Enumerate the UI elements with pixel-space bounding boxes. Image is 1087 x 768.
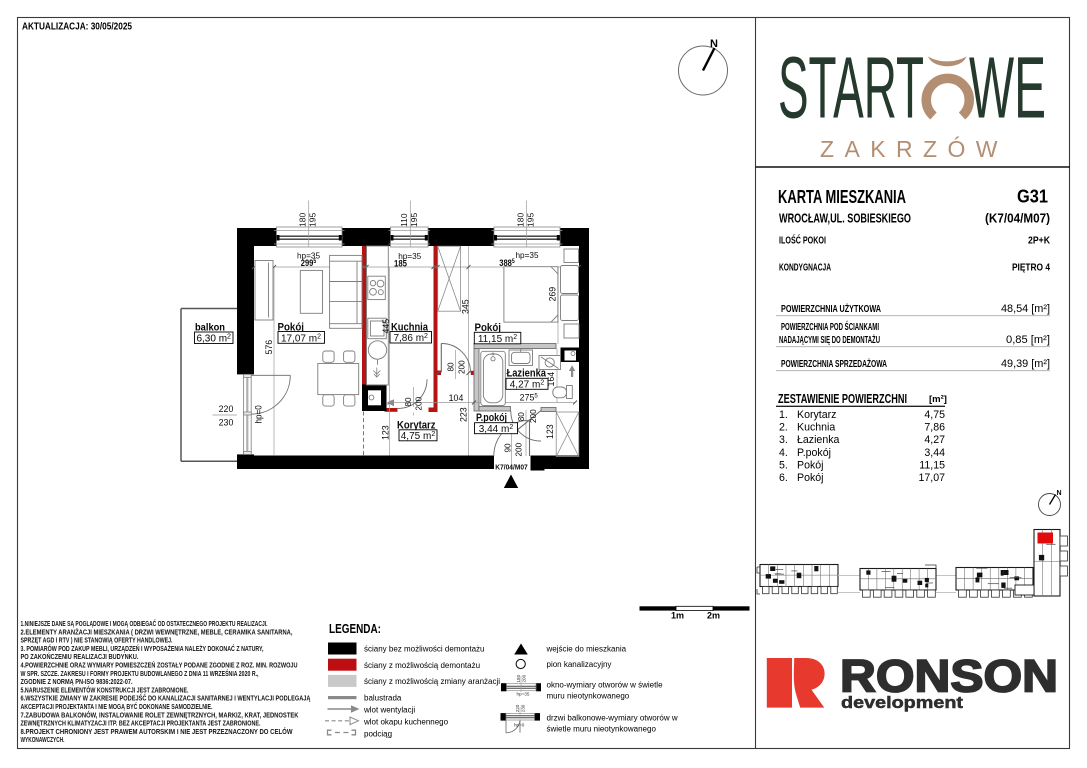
svg-text:4,75 m2: 4,75 m2 [401, 431, 436, 442]
svg-text:ZAKRZÓW: ZAKRZÓW [820, 136, 1004, 162]
svg-text:drzwi balkonowe-wymiary otworó: drzwi balkonowe-wymiary otworów w [547, 714, 678, 723]
svg-text:7.ZABUDOWA BALKONÓW, INSTALO: 7.ZABUDOWA BALKONÓW, INSTALOWANIE ROLET … [21, 710, 300, 719]
svg-text:hp=0: hp=0 [514, 723, 525, 728]
svg-text:ZGODNIE Z NORMĄ PN-ISO 9836:20: ZGODNIE Z NORMĄ PN-ISO 9836:2022-07. [21, 678, 133, 686]
svg-text:200: 200 [529, 409, 538, 423]
svg-text:8.PROJEKT CHRONIONY JEST PR: 8.PROJEKT CHRONIONY JEST PRAWEM AUTORSKI… [21, 727, 293, 736]
svg-text:START: START [778, 40, 924, 137]
svg-text:wejście do mieszkania: wejście do mieszkania [546, 645, 627, 654]
svg-text:G31: G31 [1017, 186, 1048, 207]
svg-text:7,86 m2: 7,86 m2 [393, 333, 428, 344]
svg-text:269: 269 [547, 287, 557, 302]
svg-text:3. POMIARÓW POD ZAKUP MEBLI, U: 3. POMIARÓW POD ZAKUP MEBLI, URZĄDZEŃ I … [21, 644, 264, 653]
svg-text:P.pokój: P.pokój [476, 412, 507, 424]
svg-text:K7/04/M07: K7/04/M07 [495, 463, 528, 472]
svg-text:200: 200 [515, 442, 524, 456]
svg-text:KONDYGNACJA: KONDYGNACJA [779, 263, 831, 274]
svg-text:104: 104 [449, 393, 464, 403]
svg-text:4.: 4. [779, 447, 788, 459]
svg-text:123: 123 [545, 424, 555, 439]
svg-text:N: N [710, 38, 718, 50]
svg-text:PIĘTRO 4: PIĘTRO 4 [1012, 263, 1050, 274]
svg-text:świetle muru nieotynkowanego: świetle muru nieotynkowanego [547, 725, 657, 734]
svg-text:48,54 [m²]: 48,54 [m²] [1001, 303, 1050, 315]
svg-text:230: 230 [219, 417, 234, 427]
svg-text:4,27: 4,27 [924, 434, 945, 446]
svg-text:N: N [1057, 490, 1062, 497]
svg-text:POWIERZCHNIA UŻYTKOWA: POWIERZCHNIA UŻYTKOWA [781, 302, 881, 315]
svg-text:hp=35: hp=35 [517, 691, 530, 696]
svg-text:wlot wentylacji: wlot wentylacji [363, 705, 415, 714]
svg-text:muru nieotynkowanego: muru nieotynkowanego [547, 692, 630, 701]
svg-text:80: 80 [446, 362, 455, 372]
svg-text:5.NARUSZENIE ELEMENTÓW KONSTRU: 5.NARUSZENIE ELEMENTÓW KONSTRUKCJI JEST … [21, 685, 189, 694]
svg-text:balustrada: balustrada [364, 694, 402, 703]
svg-text:123: 123 [380, 425, 390, 440]
svg-text:AKTUALIZACJA: 30/05/2025: AKTUALIZACJA: 30/05/2025 [22, 21, 132, 33]
svg-text:6,30 m2: 6,30 m2 [196, 334, 231, 345]
svg-text:SPRZĘT AGD I RTV ) NIE STANOWI: SPRZĘT AGD I RTV ) NIE STANOWIĄ OFERTY H… [21, 637, 173, 645]
svg-text:pion kanalizacyjny: pion kanalizacyjny [547, 660, 612, 669]
svg-text:POWIERZCHNIA SPRZEDAŻOWA: POWIERZCHNIA SPRZEDAŻOWA [781, 357, 887, 370]
svg-text:200: 200 [457, 360, 466, 374]
svg-text:Łazienka: Łazienka [507, 367, 547, 379]
svg-text:ściany z możliwością demontażu: ściany z możliwością demontażu [364, 661, 480, 670]
svg-text:Pokój: Pokój [797, 459, 824, 471]
svg-text:6.WSZYSTKIE ZMIANY W ZAKRESIE: 6.WSZYSTKIE ZMIANY W ZAKRESIE PODEJŚĆ DO… [21, 694, 311, 703]
svg-text:110: 110 [399, 213, 409, 227]
svg-text:180: 180 [516, 674, 521, 682]
svg-text:hp=35: hp=35 [516, 251, 539, 260]
svg-text:49,39 [m²]: 49,39 [m²] [1001, 358, 1050, 370]
svg-text:2m: 2m [707, 611, 720, 621]
svg-text:okno-wymiary otworów w świetle: okno-wymiary otworów w świetle [547, 681, 664, 690]
svg-text:Pokój: Pokój [797, 472, 824, 484]
svg-text:195: 195 [409, 213, 419, 227]
svg-text:PO ZAKOŃCZENIU REALIZACJI BUDY: PO ZAKOŃCZENIU REALIZACJI BUDYNKU. [21, 652, 139, 661]
svg-text:3.: 3. [779, 434, 788, 446]
svg-text:11,15: 11,15 [919, 459, 945, 471]
svg-text:Korytarz: Korytarz [797, 409, 836, 421]
svg-text:NADAJĄCYMI SIĘ DO DEMONTAŻU: NADAJĄCYMI SIĘ DO DEMONTAŻU [779, 333, 880, 346]
svg-text:3,44 m2: 3,44 m2 [479, 424, 514, 435]
svg-text:3,44: 3,44 [924, 447, 945, 459]
svg-text:P.pokój: P.pokój [797, 447, 831, 459]
svg-text:2.ELEMENTY ARANŻACJI MIESZKA: 2.ELEMENTY ARANŻACJI MIESZKANIA ( DRZWI … [21, 627, 293, 636]
svg-text:180: 180 [298, 213, 308, 227]
svg-text:4.POWIERZCHNIE ORAZ WYMIARY P: 4.POWIERZCHNIE ORAZ WYMIARY POMIESZCZEŃ … [21, 661, 298, 670]
svg-text:11,15 m2: 11,15 m2 [478, 334, 517, 345]
svg-text:4,27 m2: 4,27 m2 [510, 380, 545, 391]
svg-text:6.: 6. [779, 472, 788, 484]
svg-text:7,86: 7,86 [924, 422, 945, 434]
svg-text:220: 220 [219, 404, 234, 414]
svg-text:ZEWNĘTRZNYCH KLIMATYZACJI ITP.: ZEWNĘTRZNYCH KLIMATYZACJI ITP. BEZ AKCEP… [21, 720, 261, 728]
svg-text:podciąg: podciąg [364, 729, 392, 738]
svg-text:AKCEPTACJI PROJEKTANTA I NIE M: AKCEPTACJI PROJEKTANTA I NIE MOGĄ BYĆ DO… [21, 702, 213, 711]
svg-text:ZESTAWIENIE POWIERZCHNI: ZESTAWIENIE POWIERZCHNI [778, 391, 907, 406]
svg-text:0,85 [m²]: 0,85 [m²] [1006, 334, 1050, 346]
svg-text:223: 223 [459, 407, 469, 422]
svg-text:180: 180 [515, 213, 525, 227]
svg-text:LEGENDA:: LEGENDA: [329, 622, 381, 636]
svg-text:5.: 5. [779, 459, 788, 471]
svg-text:90: 90 [504, 443, 513, 453]
svg-text:4,75: 4,75 [924, 409, 945, 421]
svg-text:185: 185 [394, 258, 408, 269]
svg-text:80: 80 [517, 412, 526, 422]
svg-text:W SPR. SZCZE. ZAKRESU I FORMY: W SPR. SZCZE. ZAKRESU I FORMY PROJEKTU B… [21, 669, 259, 678]
svg-text:576: 576 [264, 340, 274, 355]
svg-text:200: 200 [522, 674, 527, 682]
svg-text:hp=0: hp=0 [253, 405, 263, 423]
svg-text:195: 195 [526, 213, 536, 227]
svg-text:wlot okapu kuchennego: wlot okapu kuchennego [363, 717, 449, 726]
svg-text:2P+K: 2P+K [1028, 236, 1050, 247]
svg-text:WROCŁAW,UL. SOBIESKIEGO: WROCŁAW,UL. SOBIESKIEGO [779, 211, 911, 226]
svg-text:(K7/04/M07): (K7/04/M07) [985, 211, 1050, 226]
svg-text:Łazienka: Łazienka [797, 434, 840, 446]
svg-text:[m²]: [m²] [929, 394, 947, 405]
svg-text:KARTA MIESZKANIA: KARTA MIESZKANIA [778, 186, 906, 207]
svg-text:1m: 1m [671, 611, 684, 621]
svg-text:1.NINIEJSZE DANE SĄ POGLĄDOWE: 1.NINIEJSZE DANE SĄ POGLĄDOWE I MOGĄ ODB… [21, 619, 268, 628]
svg-text:ściany z możliwością zmiany ar: ściany z możliwością zmiany aranżacji [364, 677, 500, 686]
svg-text:200: 200 [414, 396, 423, 410]
svg-text:Kuchnia: Kuchnia [797, 422, 835, 434]
svg-text:ściany bez możliwości demontaż: ściany bez możliwości demontażu [364, 645, 485, 654]
svg-text:220: 220 [515, 704, 520, 712]
svg-text:80: 80 [404, 397, 413, 407]
svg-text:230: 230 [521, 704, 526, 712]
svg-text:17,07 m2: 17,07 m2 [281, 333, 321, 344]
svg-text:WE: WE [969, 40, 1046, 137]
svg-text:1.: 1. [779, 409, 788, 421]
svg-text:POWIERZCHNIA POD ŚCIANKAMI: POWIERZCHNIA POD ŚCIANKAMI [781, 320, 879, 333]
svg-text:2.: 2. [779, 422, 788, 434]
svg-text:17,07: 17,07 [918, 472, 945, 484]
svg-text:445: 445 [381, 319, 391, 334]
svg-text:ILOŚĆ POKOI: ILOŚĆ POKOI [779, 235, 826, 247]
svg-text:195: 195 [308, 213, 318, 227]
svg-text:WYKONAWCZYCH.: WYKONAWCZYCH. [21, 736, 65, 744]
svg-text:development: development [841, 694, 964, 712]
svg-text:345: 345 [461, 299, 471, 314]
